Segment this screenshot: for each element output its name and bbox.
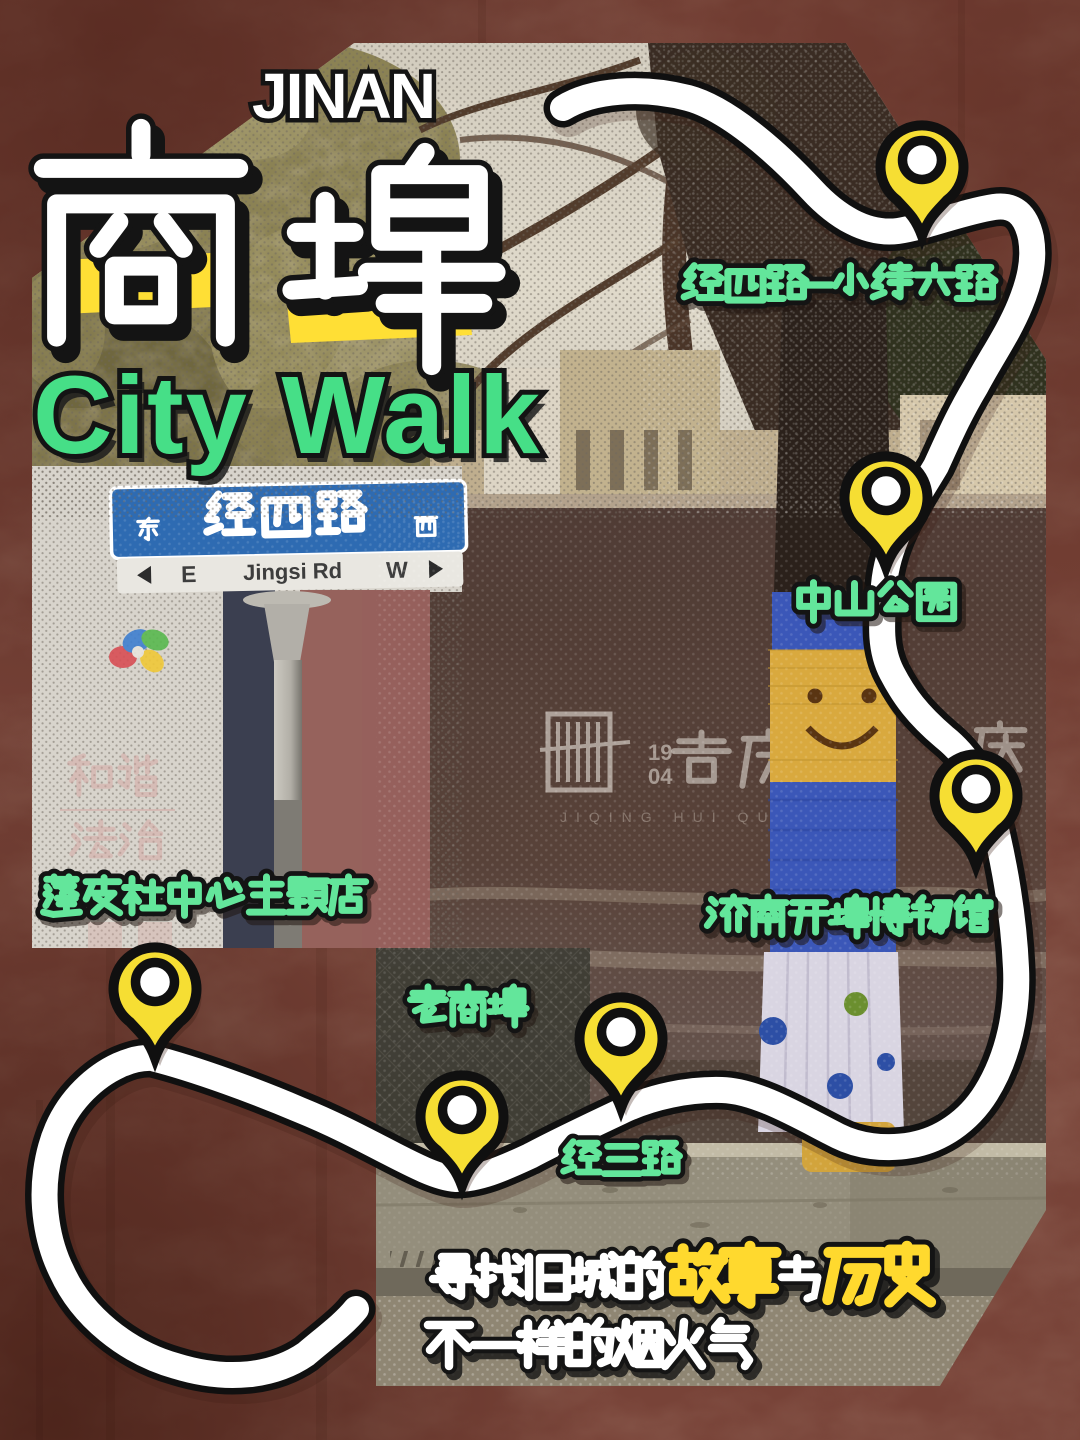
- svg-text:JINAN: JINAN: [252, 60, 434, 132]
- svg-text:Jingsi Rd: Jingsi Rd: [243, 558, 343, 585]
- svg-text:City Walk: City Walk: [33, 354, 542, 477]
- svg-text:E: E: [181, 561, 197, 587]
